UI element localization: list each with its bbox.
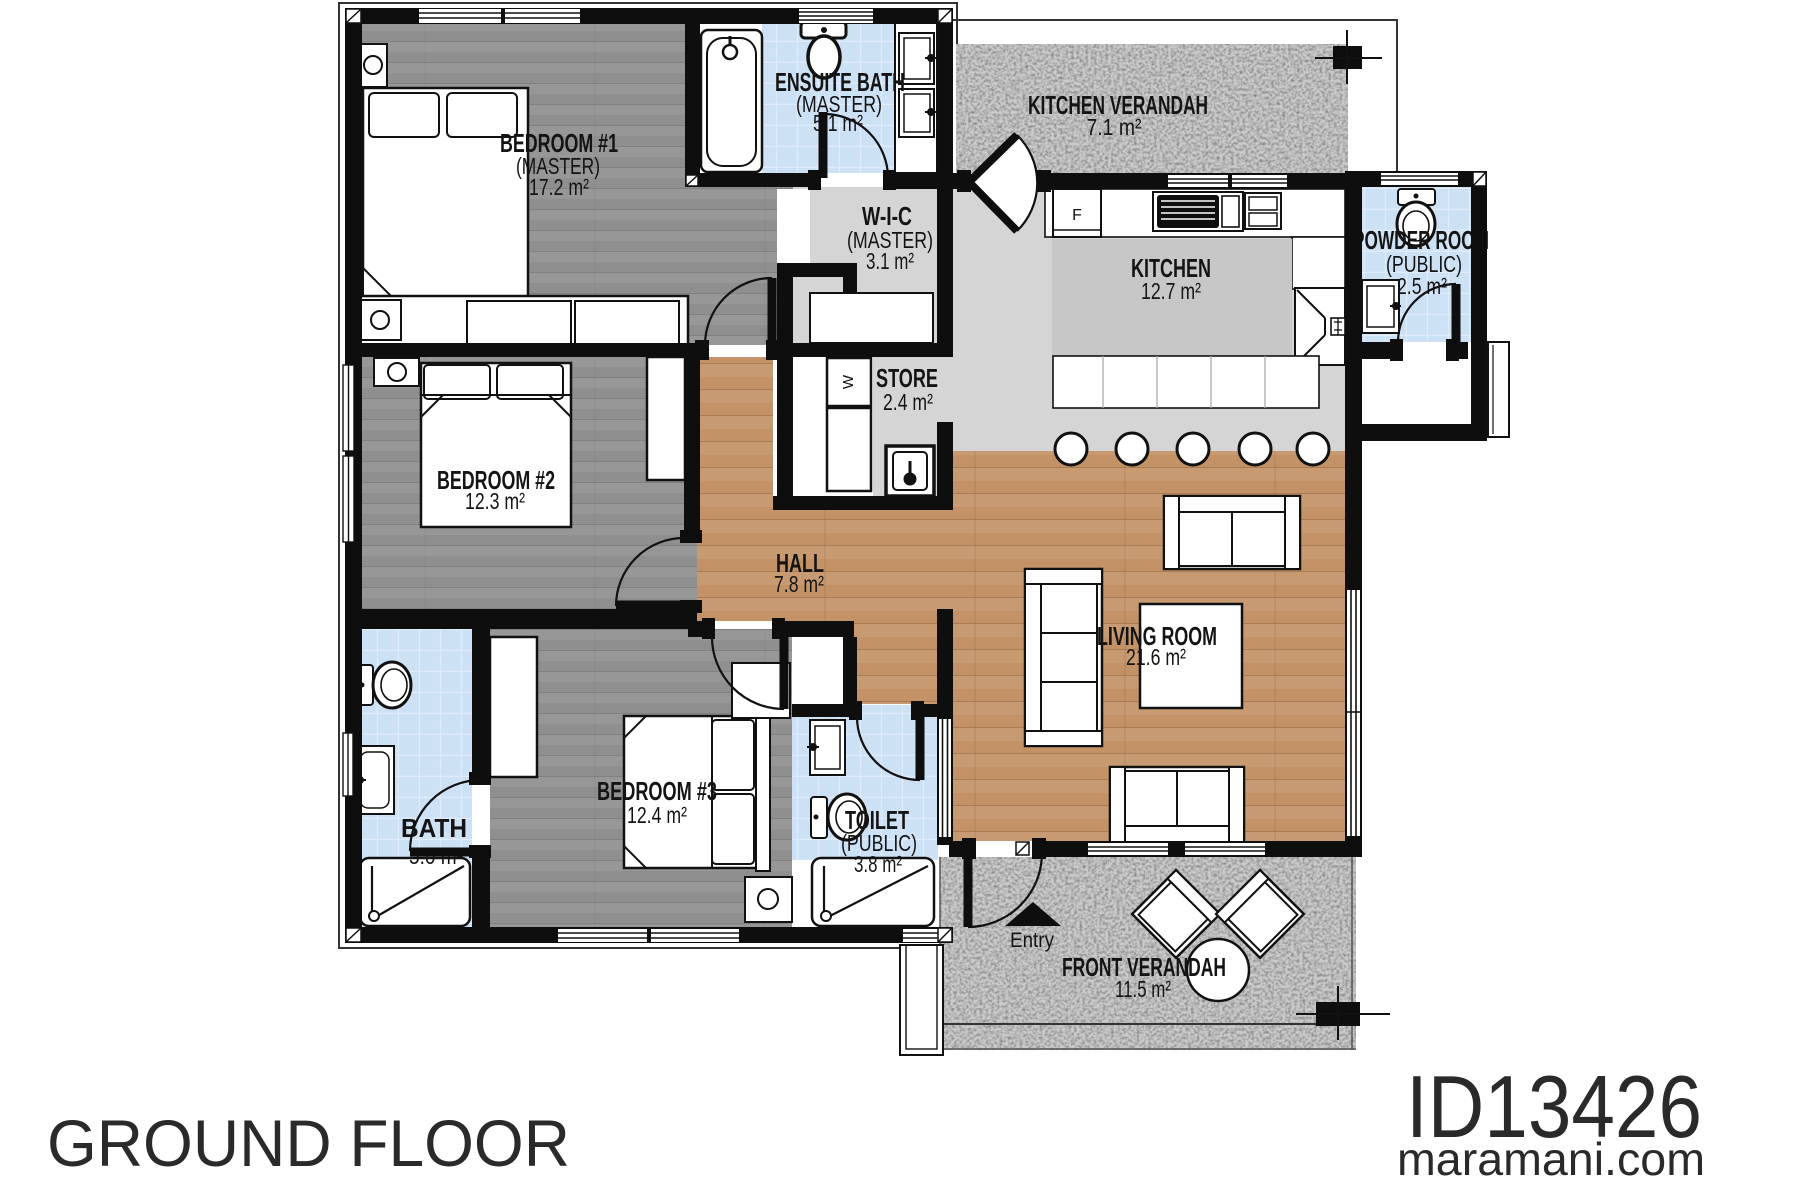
svg-text:2.4 m²: 2.4 m² bbox=[883, 389, 933, 415]
svg-text:3.1 m²: 3.1 m² bbox=[866, 248, 914, 274]
svg-text:21.6 m²: 21.6 m² bbox=[1126, 644, 1186, 670]
svg-text:F: F bbox=[1072, 207, 1082, 224]
svg-text:Entry: Entry bbox=[1010, 929, 1054, 952]
svg-text:7.8 m²: 7.8 m² bbox=[774, 571, 824, 597]
svg-text:17.2 m²: 17.2 m² bbox=[529, 174, 589, 200]
svg-text:7.1 m²: 7.1 m² bbox=[1087, 114, 1142, 140]
svg-text:11.5 m²: 11.5 m² bbox=[1115, 976, 1171, 1002]
svg-text:3.8 m²: 3.8 m² bbox=[854, 851, 902, 877]
svg-text:12.7 m²: 12.7 m² bbox=[1141, 278, 1201, 304]
svg-text:maramani.com: maramani.com bbox=[1397, 1133, 1705, 1185]
svg-text:12.4 m²: 12.4 m² bbox=[627, 802, 687, 828]
svg-text:GROUND FLOOR: GROUND FLOOR bbox=[47, 1106, 570, 1180]
svg-text:W: W bbox=[840, 374, 857, 389]
svg-text:12.3 m²: 12.3 m² bbox=[465, 488, 525, 514]
